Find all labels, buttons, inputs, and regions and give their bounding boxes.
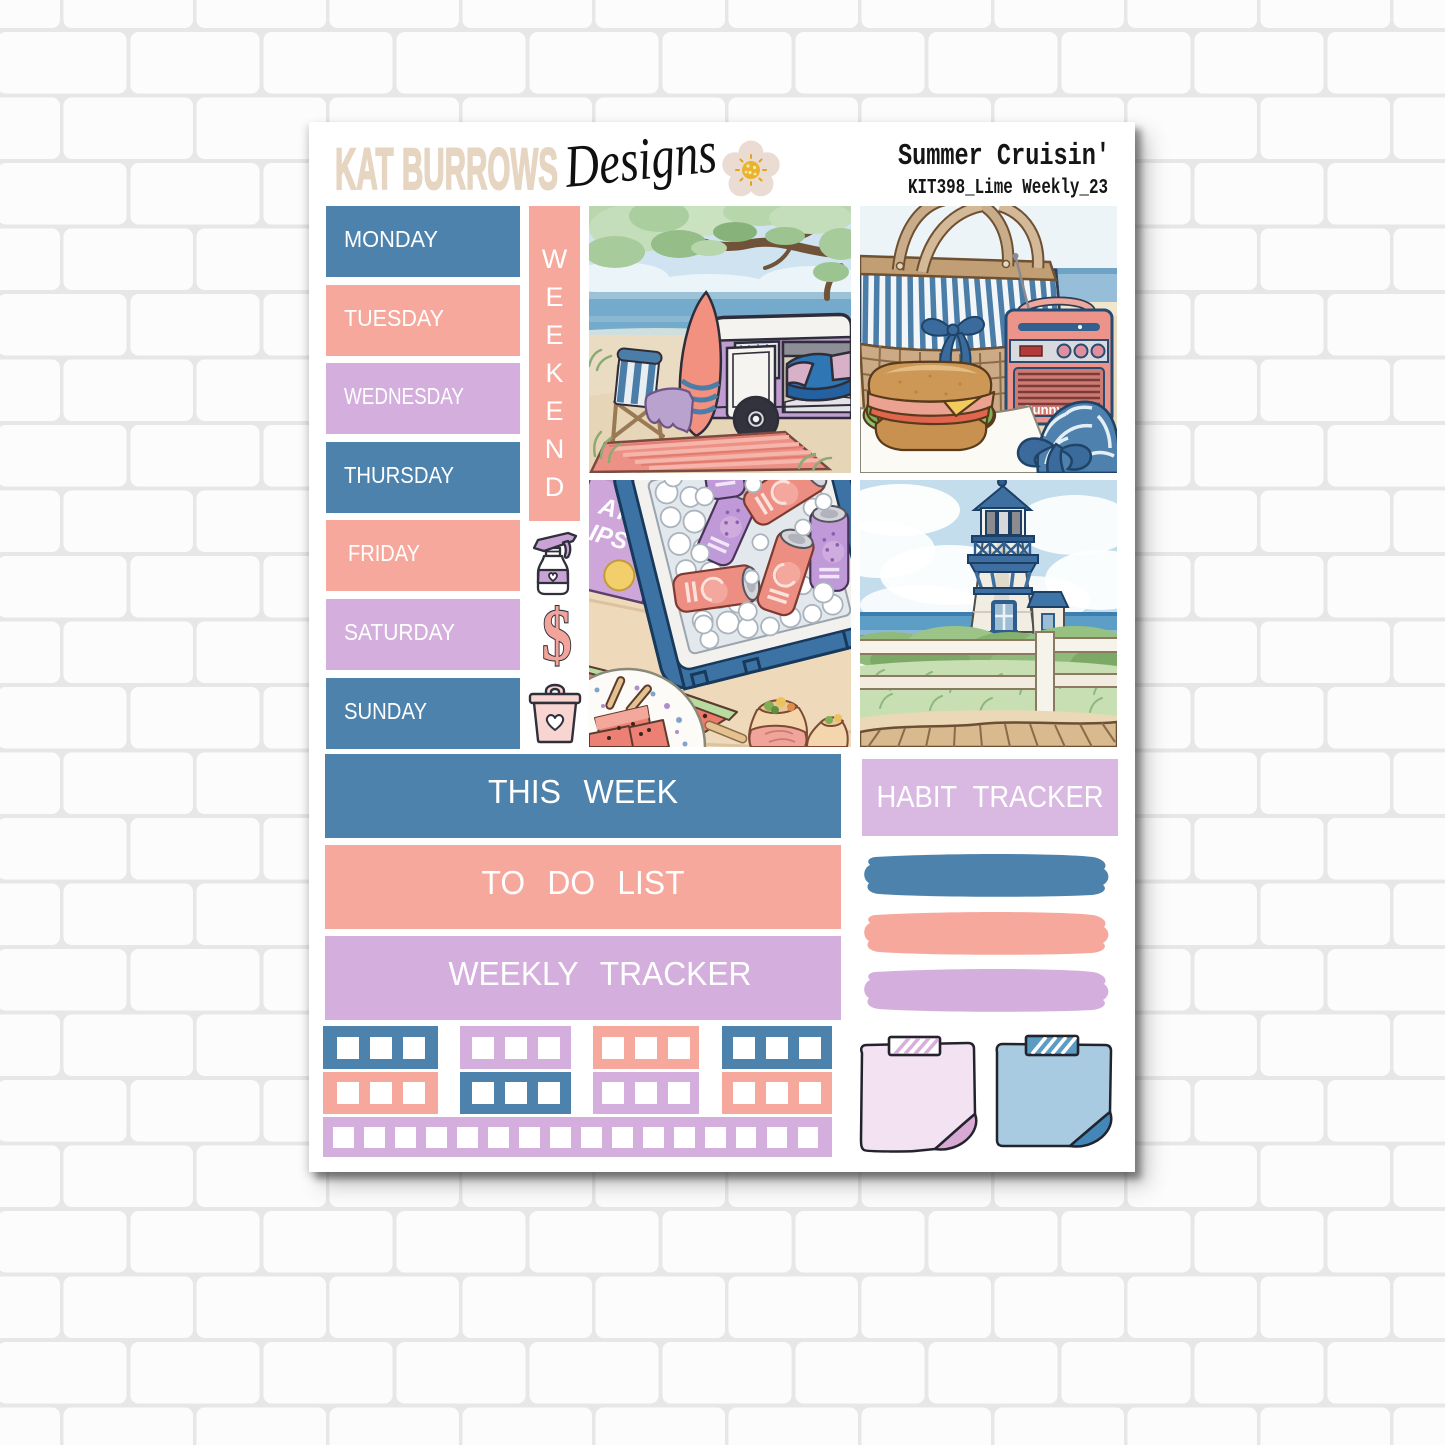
svg-text:SUNDAY: SUNDAY <box>344 698 427 724</box>
svg-text:SATURDAY: SATURDAY <box>344 619 455 645</box>
svg-text:Summer Cruisin': Summer Cruisin' <box>898 139 1110 174</box>
svg-text:WEEKLY TRACKER: WEEKLY TRACKER <box>449 955 752 992</box>
svg-text:KAT BURROWS: KAT BURROWS <box>335 137 558 202</box>
svg-text:HABIT TRACKER: HABIT TRACKER <box>877 779 1104 814</box>
svg-text:THURSDAY: THURSDAY <box>344 462 454 488</box>
svg-text:FRIDAY: FRIDAY <box>348 540 420 566</box>
svg-text:WEDNESDAY: WEDNESDAY <box>344 383 464 409</box>
svg-text:MONDAY: MONDAY <box>344 226 438 252</box>
svg-text:TUESDAY: TUESDAY <box>344 305 444 331</box>
svg-text:TO DO LIST: TO DO LIST <box>482 864 685 901</box>
svg-text:$: $ <box>542 605 572 671</box>
svg-text:Designs: Designs <box>561 122 720 200</box>
svg-text:KIT398_Lime Weekly_23: KIT398_Lime Weekly_23 <box>908 177 1108 200</box>
svg-text:THIS WEEK: THIS WEEK <box>488 773 678 810</box>
